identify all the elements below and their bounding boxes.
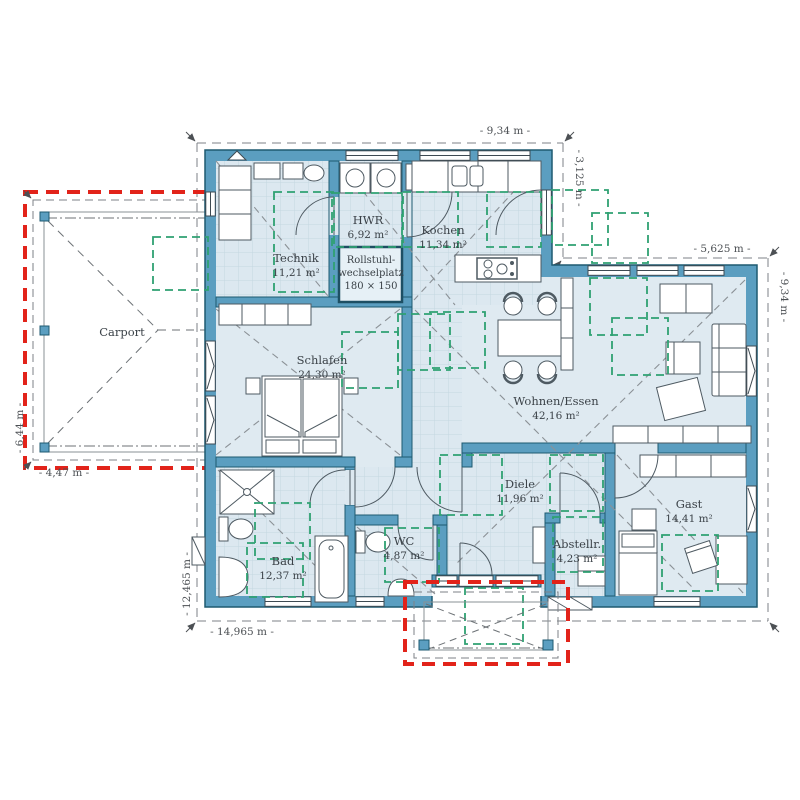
wardrobe	[219, 304, 311, 325]
label-schlafen: Schlafen	[297, 353, 348, 367]
porch-roof-edge	[424, 602, 548, 650]
light-well	[192, 537, 205, 565]
washer	[340, 163, 370, 193]
window	[588, 266, 630, 276]
window	[637, 266, 678, 276]
kitchen-sink	[452, 166, 483, 186]
label-abstellraum: Abstellr.	[552, 537, 601, 551]
nightstand	[246, 378, 260, 394]
area-bad: 12,37 m²	[259, 570, 307, 582]
window	[206, 341, 216, 391]
dim-carport-left: - 6,44 m -	[14, 402, 26, 453]
area-diele: 11,96 m²	[496, 493, 544, 505]
side-table	[632, 509, 656, 530]
shower	[220, 470, 274, 514]
dim-notch-right: - 3,125 m -	[573, 149, 585, 207]
cabinet	[660, 284, 712, 313]
guest-bed	[619, 531, 657, 595]
area-wohnen: 42,16 m²	[532, 410, 580, 422]
area-hwr: 6,92 m²	[348, 229, 389, 241]
label-carport: Carport	[99, 325, 145, 339]
dim-bottom: - 14,965 m -	[210, 626, 274, 638]
window	[684, 266, 724, 276]
area-gast: 14,41 m²	[665, 513, 713, 525]
heat-pump	[219, 166, 251, 240]
dim-right: - 9,34 m -	[778, 272, 790, 323]
label-technik: Technik	[273, 251, 320, 265]
window	[478, 151, 530, 161]
sofa	[712, 324, 746, 396]
terrace-window	[747, 346, 757, 396]
wardrobe	[640, 455, 746, 477]
label-wc: WC	[394, 534, 415, 548]
label-gast: Gast	[676, 497, 703, 511]
hall-cabinet	[533, 527, 545, 563]
armchair	[666, 342, 700, 374]
window	[346, 151, 398, 161]
dim-carport-bottom: - 4,47 m -	[39, 467, 90, 479]
shelf-box	[283, 163, 303, 179]
label-wohnen: Wohnen/Essen	[513, 394, 599, 408]
window	[356, 597, 384, 607]
dim-left: - 12,465 m -	[181, 552, 193, 616]
dim-top: - 9,34 m -	[480, 125, 531, 137]
label-rollstuhl-2: wechselplatz	[338, 268, 404, 279]
toilet	[219, 517, 253, 541]
window	[206, 192, 216, 216]
dryer	[371, 163, 401, 193]
sideboard	[613, 426, 751, 443]
window	[420, 151, 470, 161]
bathtub	[315, 536, 348, 602]
floor-plan-canvas: Carport Technik 11,21 m² HWR 6,92 m² Rol…	[0, 0, 800, 800]
basin-tub	[304, 165, 324, 181]
window	[206, 396, 216, 444]
terrace-door	[542, 190, 552, 235]
shelf-box	[254, 163, 280, 179]
area-schlafen: 24,30 m²	[298, 369, 346, 381]
double-bed	[262, 376, 342, 456]
dim-notch-top: - 5,625 m -	[693, 243, 751, 255]
dining-table	[498, 320, 566, 356]
label-rollstuhl-1: Rollstuhl-	[347, 255, 396, 266]
label-hwr: HWR	[353, 213, 384, 227]
label-kochen: Kochen	[421, 223, 465, 237]
kitchen-island	[455, 255, 541, 282]
shelf-divider	[561, 278, 573, 370]
label-rollstuhl-3: 180 × 150	[345, 281, 398, 292]
label-diele: Diele	[505, 477, 535, 491]
desk	[716, 536, 747, 584]
area-kochen: 11,34 m²	[419, 239, 467, 251]
nightstand	[344, 378, 358, 394]
area-technik: 11,21 m²	[272, 267, 320, 279]
window	[654, 597, 700, 607]
area-abstellraum: 4,23 m²	[557, 553, 598, 565]
area-wc: 4,87 m²	[384, 550, 425, 562]
window	[265, 597, 311, 607]
label-bad: Bad	[272, 554, 295, 568]
floor-plan-svg: Carport Technik 11,21 m² HWR 6,92 m² Rol…	[0, 0, 800, 800]
window	[747, 486, 757, 532]
